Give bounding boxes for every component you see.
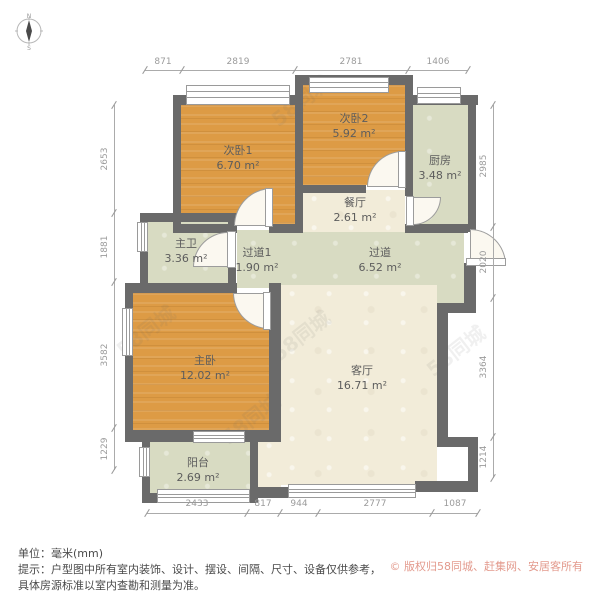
room-label-hallway-1: 过道1 1.90 m² — [235, 245, 278, 275]
room-name: 次卧1 — [216, 143, 259, 158]
wall-segment — [125, 283, 133, 442]
wall-segment — [173, 95, 181, 232]
wall-segment — [140, 213, 237, 222]
compass-south-label: S — [27, 45, 31, 50]
tip-line-2: 具体房源标准以室内查勘和测量为准。 — [18, 578, 381, 594]
window — [193, 431, 245, 443]
dim-left-3: 3582 — [100, 344, 110, 367]
dimension-tick — [490, 474, 496, 482]
dim-right-1: 2985 — [479, 155, 489, 178]
room-area: 2.61 m² — [333, 210, 376, 225]
room-name: 次卧2 — [332, 111, 375, 126]
floor-living-room-sw — [258, 437, 281, 487]
window — [186, 85, 290, 105]
copyright-line: © 版权归58同城、赶集网、安居客所有 — [390, 558, 584, 574]
room-area: 6.70 m² — [216, 158, 259, 173]
room-label-balcony: 阳台 2.69 m² — [176, 455, 219, 485]
dimension-line-top — [145, 70, 468, 71]
dim-left-2: 1881 — [100, 236, 110, 259]
room-label-master-bedroom: 主卧 12.02 m² — [180, 353, 230, 383]
room-name: 过道 — [358, 245, 401, 260]
dim-top-4: 1406 — [427, 57, 450, 67]
room-name: 主卫 — [164, 236, 207, 251]
wall-segment — [258, 487, 289, 498]
room-name: 客厅 — [337, 363, 387, 378]
window — [139, 447, 150, 477]
window — [417, 87, 461, 104]
room-label-secondary-bedroom-2: 次卧2 5.92 m² — [332, 111, 375, 141]
room-label-hallway: 过道 6.52 m² — [358, 245, 401, 275]
door-leaf-bedroom2 — [398, 151, 406, 188]
dimension-line-bottom — [147, 513, 478, 514]
door-leaf-kitchen — [406, 196, 414, 226]
room-label-kitchen: 厨房 3.48 m² — [418, 153, 461, 183]
dim-top-3: 2781 — [340, 57, 363, 67]
room-area: 12.02 m² — [180, 368, 230, 383]
window — [309, 77, 389, 93]
window — [288, 484, 416, 498]
wall-segment — [468, 95, 476, 232]
dim-right-4: 1214 — [479, 446, 489, 469]
dim-bottom-4: 2777 — [364, 499, 387, 509]
dim-bottom-3: 944 — [290, 499, 307, 509]
room-name: 厨房 — [418, 153, 461, 168]
dim-left-4: 1229 — [100, 438, 110, 461]
dim-top-1: 871 — [154, 57, 171, 67]
dim-bottom-5: 1087 — [444, 499, 467, 509]
dim-bottom-2: 817 — [254, 499, 271, 509]
door-leaf-masterbed — [263, 292, 271, 330]
room-name: 阳台 — [176, 455, 219, 470]
dim-right-3: 3364 — [479, 356, 489, 379]
room-name: 主卧 — [180, 353, 230, 368]
dim-top-2: 2819 — [227, 57, 250, 67]
wall-segment — [295, 75, 303, 233]
wall-segment — [468, 447, 478, 492]
room-name: 过道1 — [235, 245, 278, 260]
room-area: 1.90 m² — [235, 260, 278, 275]
dimension-tick — [475, 509, 481, 517]
dim-bottom-1: 2433 — [186, 499, 209, 509]
dim-left-1: 2653 — [100, 148, 110, 171]
compass-north-label: N — [27, 13, 32, 20]
dimension-line-left — [114, 105, 115, 470]
room-area: 6.52 m² — [358, 260, 401, 275]
dimension-tick — [111, 466, 117, 474]
room-area: 5.92 m² — [332, 126, 375, 141]
room-area: 2.69 m² — [176, 470, 219, 485]
floor-hallway-east — [437, 230, 464, 305]
window — [122, 308, 133, 356]
wall-segment — [437, 313, 448, 447]
wall-segment — [464, 263, 476, 308]
door-leaf-bedroom1 — [265, 188, 273, 227]
room-label-living-room: 客厅 16.71 m² — [337, 363, 387, 393]
tip-line-1: 提示：户型图中所有室内装饰、设计、摆设、间隔、尺寸、设备仅供参考， — [18, 562, 381, 578]
room-area: 16.71 m² — [337, 378, 387, 393]
room-label-dining: 餐厅 2.61 m² — [333, 195, 376, 225]
wall-segment — [405, 224, 468, 233]
wall-segment — [415, 481, 468, 492]
dimension-line-right — [493, 105, 494, 478]
room-area: 3.36 m² — [164, 251, 207, 266]
window — [137, 222, 148, 252]
room-label-master-bath: 主卫 3.36 m² — [164, 236, 207, 266]
room-label-secondary-bedroom-1: 次卧1 6.70 m² — [216, 143, 259, 173]
dimension-tick — [465, 66, 471, 74]
wall-segment — [405, 75, 413, 196]
room-name: 餐厅 — [333, 195, 376, 210]
compass-icon: N S — [12, 12, 46, 50]
dim-right-2: 2020 — [479, 251, 489, 274]
footer-disclaimer: 单位：毫米(mm) 提示：户型图中所有室内装饰、设计、摆设、间隔、尺寸、设备仅供… — [18, 546, 381, 594]
wall-segment — [250, 430, 258, 500]
room-area: 3.48 m² — [418, 168, 461, 183]
unit-line: 单位：毫米(mm) — [18, 546, 381, 562]
wall-segment — [303, 185, 366, 193]
